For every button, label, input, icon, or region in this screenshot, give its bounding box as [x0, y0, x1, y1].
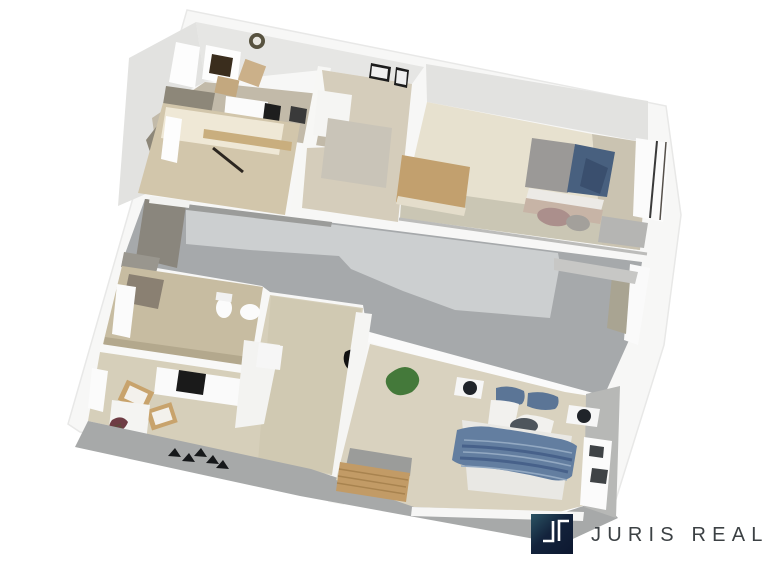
svg-text:JURIS REAL: JURIS REAL [591, 524, 768, 546]
